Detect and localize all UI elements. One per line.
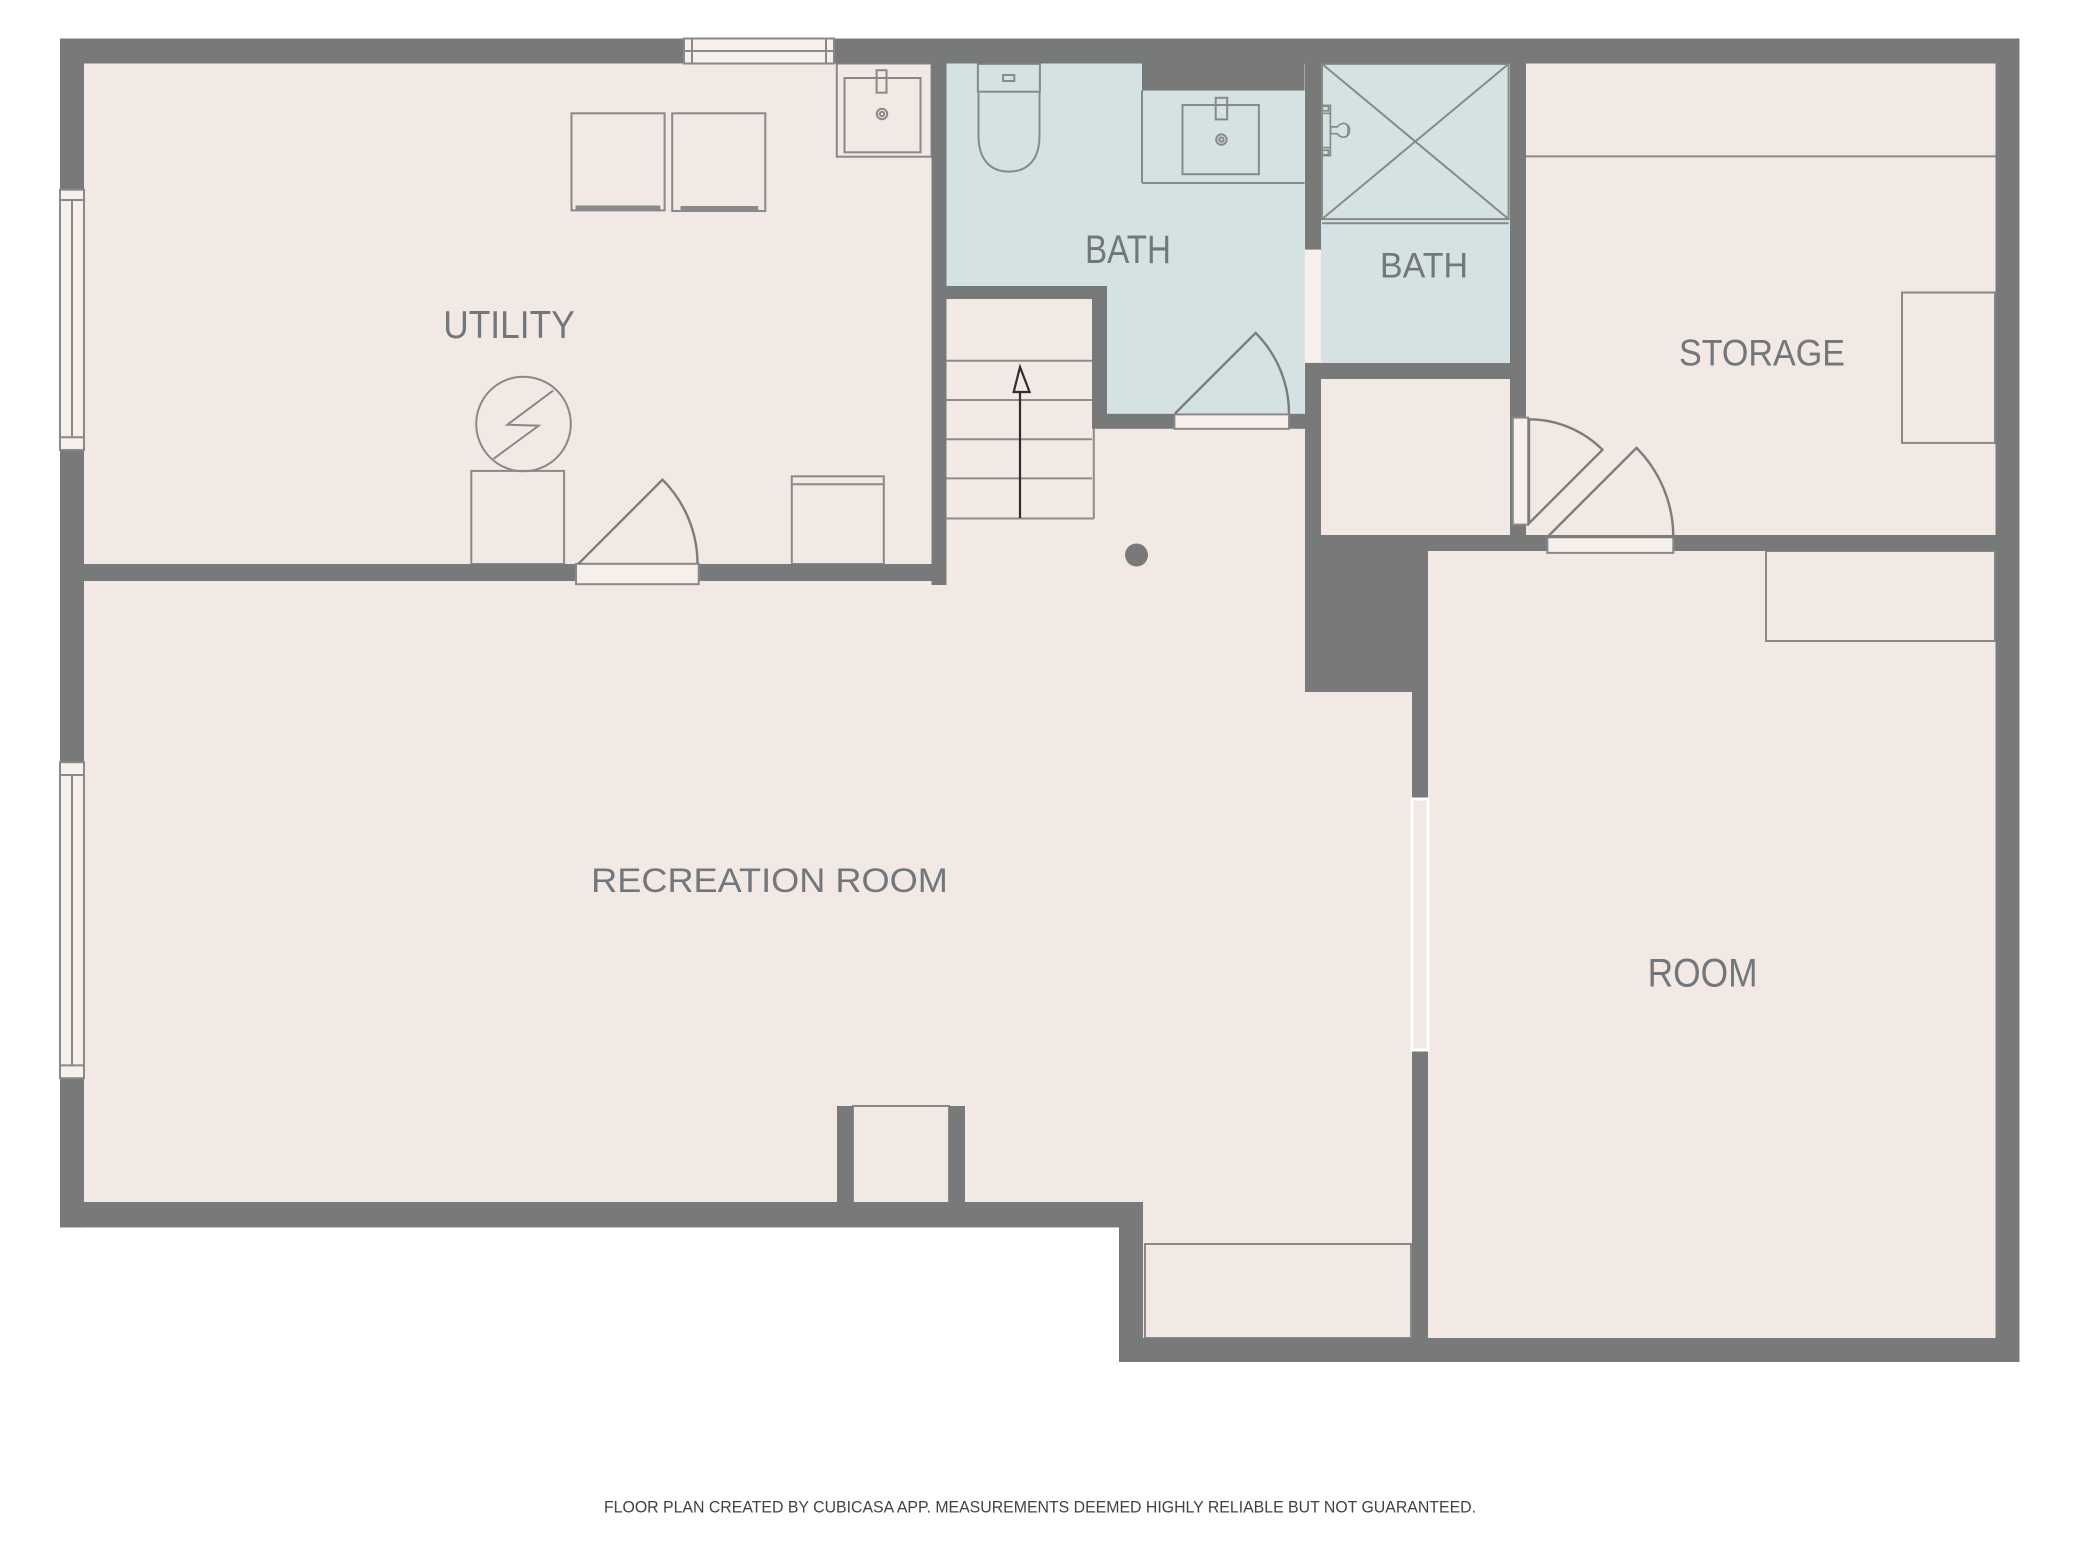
svg-text:BATH: BATH <box>1085 228 1171 272</box>
svg-text:UTILITY: UTILITY <box>443 304 575 347</box>
svg-text:FLOOR PLAN CREATED BY CUBICASA: FLOOR PLAN CREATED BY CUBICASA APP. MEAS… <box>604 1497 1476 1516</box>
svg-text:RECREATION ROOM: RECREATION ROOM <box>591 862 948 900</box>
svg-text:ROOM: ROOM <box>1648 952 1758 996</box>
svg-text:STORAGE: STORAGE <box>1679 333 1845 374</box>
svg-text:BATH: BATH <box>1380 247 1468 286</box>
